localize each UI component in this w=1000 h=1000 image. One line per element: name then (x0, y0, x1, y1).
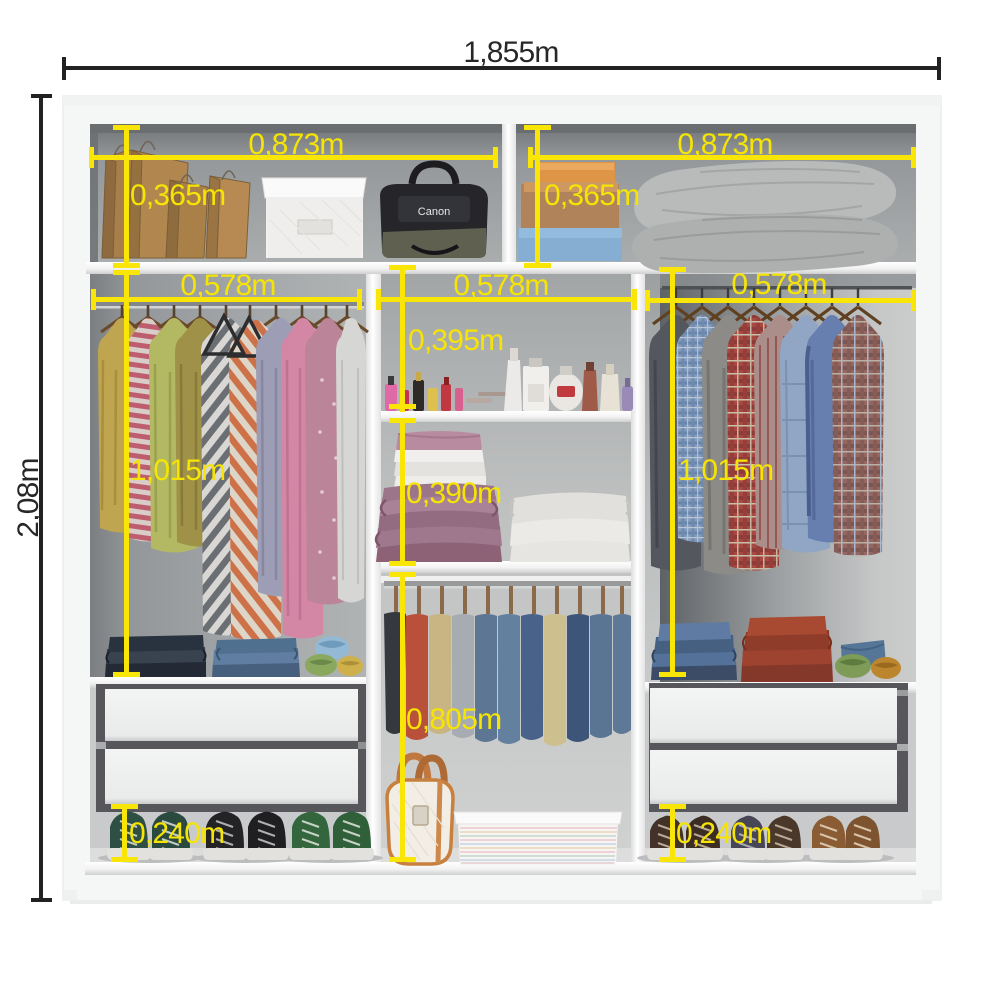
svg-text:1,015m: 1,015m (678, 454, 773, 487)
svg-text:0,873m: 0,873m (248, 128, 343, 161)
svg-text:0,390m: 0,390m (406, 477, 501, 510)
svg-text:1,015m: 1,015m (130, 454, 225, 487)
svg-text:0,395m: 0,395m (408, 324, 503, 357)
svg-text:1,855m: 1,855m (463, 36, 558, 69)
svg-text:0,578m: 0,578m (453, 269, 548, 302)
svg-text:0,240m: 0,240m (676, 817, 771, 850)
svg-text:Canon: Canon (418, 206, 450, 218)
svg-text:0,365m: 0,365m (544, 179, 639, 212)
svg-text:2,08m: 2,08m (12, 458, 45, 537)
svg-text:0,240m: 0,240m (129, 817, 224, 850)
svg-text:0,578m: 0,578m (731, 268, 826, 301)
svg-text:0,578m: 0,578m (180, 269, 275, 302)
svg-text:0,805m: 0,805m (406, 703, 501, 736)
svg-text:0,873m: 0,873m (677, 128, 772, 161)
svg-text:0,365m: 0,365m (130, 179, 225, 212)
